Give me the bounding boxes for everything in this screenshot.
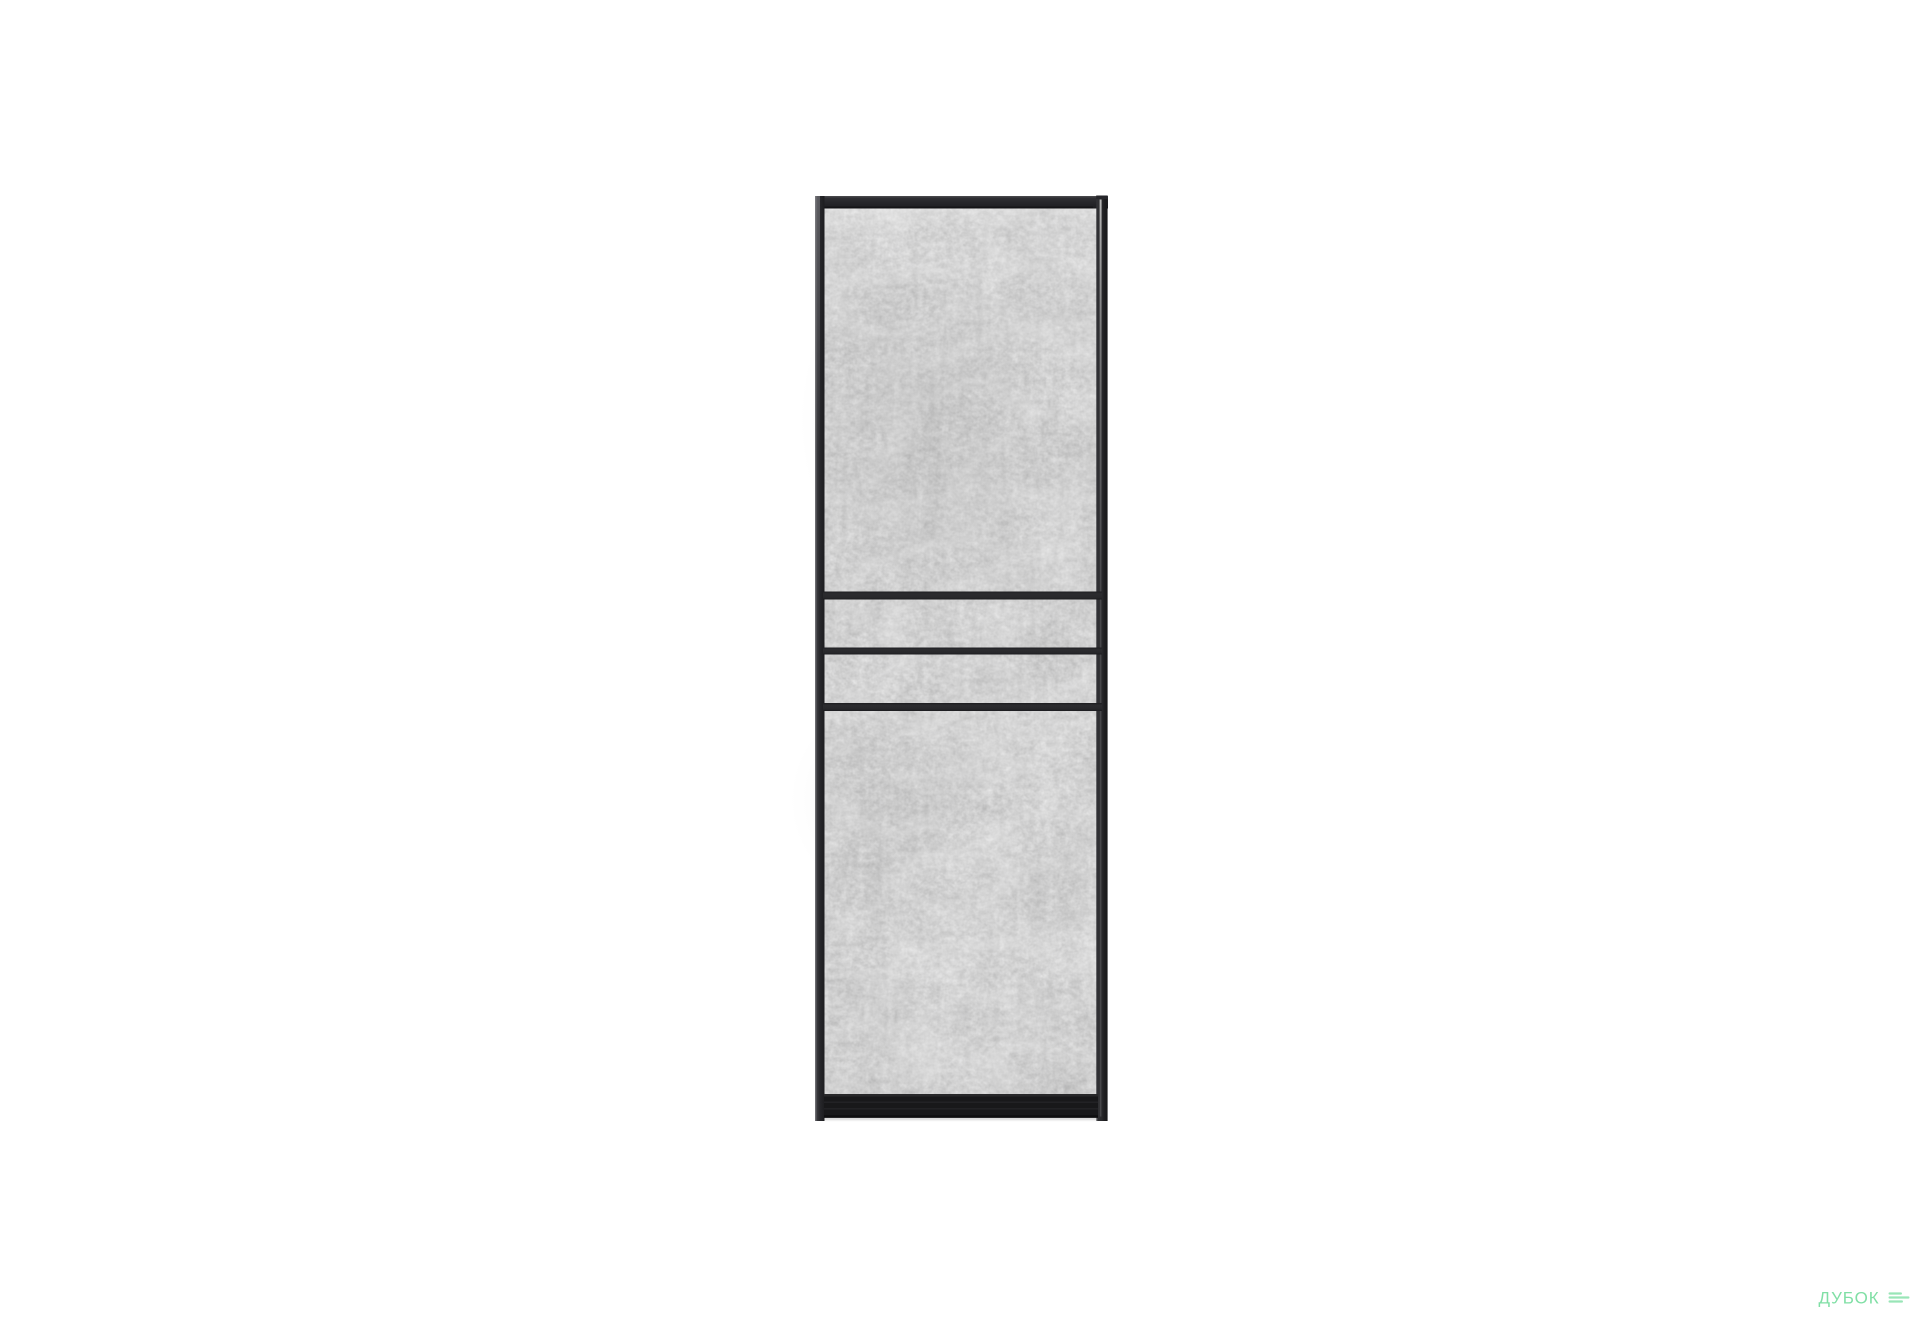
svg-text:ДУБОК: ДУБОК [1819,1289,1880,1308]
